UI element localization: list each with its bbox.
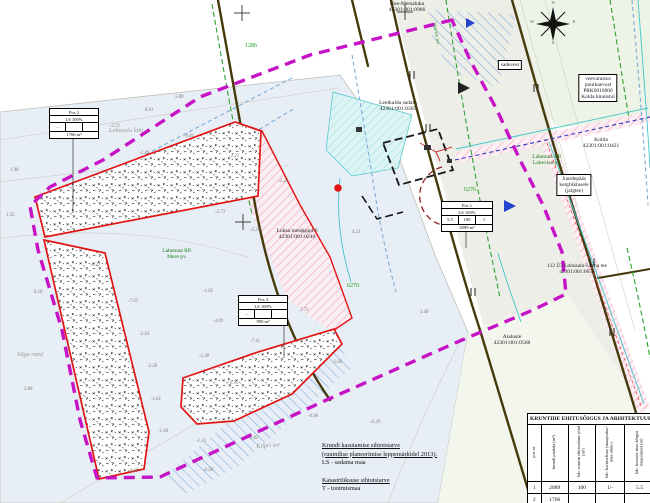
table-column-header: lub. korruselisus (maapealne/ maa-alune) — [595, 425, 624, 482]
north-arrow — [536, 7, 570, 41]
legend-notes: Krundi kasutamise sihtotstarve(ruumilise… — [322, 442, 437, 503]
table-column-header: pos nr. — [528, 425, 542, 482]
building-rights-table-title: KRUNTIDE EHITUSÕIGUS JA ARHITEKTUUR — [528, 414, 650, 425]
table-row: 21766 — [528, 494, 650, 503]
legend-line — [322, 494, 437, 503]
legend-line: Katastriüksuse sihtotstarve — [322, 477, 437, 486]
red-point-marker — [334, 184, 342, 192]
building-rights-table: KRUNTIDE EHITUSÕIGUS JA ARHITEKTUUR pos … — [527, 413, 650, 503]
legend-line: (ruumilise planeerimise leppemärkidel 20… — [322, 451, 437, 460]
legend-line: Krundi kasutamise sihtotstarve — [322, 442, 437, 451]
table-column-header: lub. suurim ehitisealune pind (m²) — [568, 425, 595, 482]
legend-line: LS - sadama maa — [322, 459, 437, 468]
table-column-header: krundi pindala (m²) — [541, 425, 568, 482]
legend-line — [322, 468, 437, 477]
legend-line: T - tootmismaa — [322, 485, 437, 494]
detail-plan-map-page: Uue-Metsaluka42301:001:0966Leetkalda sad… — [0, 0, 650, 503]
table-row: 120891001/-5.5 — [528, 482, 650, 494]
table-column-header: lub. hoonete max kõrgus maapinnast (m) — [625, 425, 650, 482]
